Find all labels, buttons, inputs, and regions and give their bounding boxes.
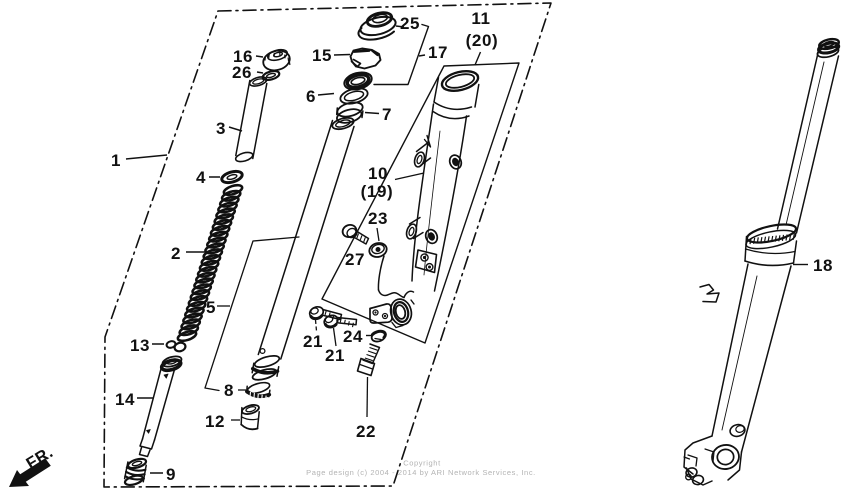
svg-text:(19): (19) [361, 182, 394, 201]
svg-text:7: 7 [382, 105, 392, 124]
svg-text:21: 21 [325, 346, 345, 365]
svg-text:Page design (c) 2004 - 2014 by: Page design (c) 2004 - 2014 by ARI Netwo… [306, 468, 536, 477]
svg-text:21: 21 [303, 332, 323, 351]
svg-text:10: 10 [368, 164, 388, 183]
svg-text:18: 18 [813, 256, 833, 275]
svg-text:1: 1 [111, 151, 121, 170]
svg-text:15: 15 [312, 46, 332, 65]
svg-text:5: 5 [206, 298, 216, 317]
svg-text:11: 11 [471, 9, 490, 28]
svg-text:8: 8 [224, 381, 234, 400]
svg-text:4: 4 [196, 168, 206, 187]
svg-text:3: 3 [216, 119, 226, 138]
svg-text:17: 17 [428, 43, 448, 62]
svg-text:25: 25 [400, 14, 420, 33]
svg-text:6: 6 [306, 87, 316, 106]
svg-text:2: 2 [171, 244, 181, 263]
svg-text:22: 22 [356, 422, 376, 441]
svg-text:(20): (20) [466, 31, 499, 50]
svg-text:14: 14 [115, 390, 135, 409]
svg-text:9: 9 [166, 465, 176, 484]
svg-text:27: 27 [345, 250, 365, 269]
svg-text:Copyright: Copyright [403, 459, 441, 468]
svg-text:13: 13 [130, 336, 150, 355]
svg-text:12: 12 [205, 412, 225, 431]
svg-text:23: 23 [368, 209, 388, 228]
svg-text:26: 26 [232, 63, 252, 82]
svg-text:24: 24 [343, 327, 363, 346]
